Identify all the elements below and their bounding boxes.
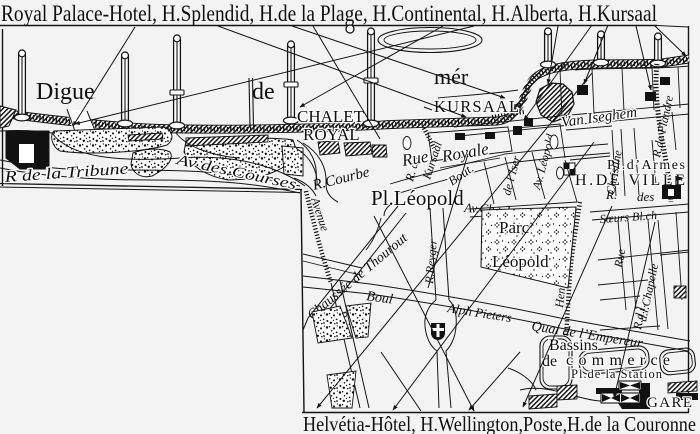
svg-text:Pl.Léopold: Pl.Léopold: [371, 186, 464, 210]
svg-text:de: de: [252, 79, 275, 105]
svg-text:mér: mér: [434, 64, 469, 89]
svg-text:de: de: [542, 353, 557, 370]
svg-text:Digue: Digue: [36, 79, 95, 105]
svg-text:ROYAL: ROYAL: [303, 125, 360, 144]
svg-text:KURSAAL: KURSAAL: [434, 97, 520, 116]
svg-text:Royal Palace-Hotel, H.Splendid: Royal Palace-Hotel, H.Splendid, H.de la …: [1, 1, 657, 26]
svg-text:des: des: [637, 189, 654, 204]
svg-text:Pl.de la Station: Pl.de la Station: [571, 367, 663, 381]
svg-text:Helvétia-Hôtel, H.Wellington,P: Helvétia-Hôtel, H.Wellington,Poste,H.de …: [303, 412, 696, 434]
svg-text:GARE: GARE: [647, 395, 692, 411]
svg-text:CHALET: CHALET: [297, 107, 365, 126]
svg-text:Léopold: Léopold: [492, 252, 549, 271]
svg-text:Bassins: Bassins: [549, 337, 598, 354]
